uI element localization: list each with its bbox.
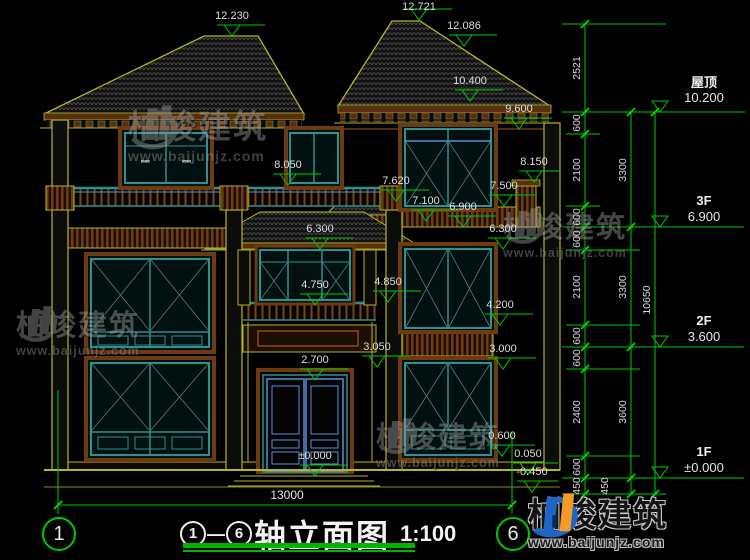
roof-left	[44, 36, 304, 114]
dimension-label: 2100	[571, 146, 583, 194]
elevation-marker-label: 2.700	[287, 354, 343, 367]
title-dash: —	[207, 524, 225, 545]
elevation-marker-label: 0.600	[474, 430, 530, 443]
elevation-marker-label: 12.721	[391, 1, 447, 14]
brand-logo: 柏竣建筑 www.baijunjz.com	[528, 488, 668, 550]
elevation-marker-label: 4.750	[287, 279, 343, 292]
window-2f-left	[86, 254, 214, 352]
elevation-marker-label: 12.230	[204, 10, 260, 23]
title-underline	[183, 543, 415, 548]
elevation-marker-label: 6.300	[475, 223, 531, 236]
window-2f-center	[256, 246, 354, 304]
elevation-marker-label: 8.050	[260, 159, 316, 172]
floor-level-elevation: 6.900	[664, 209, 744, 224]
entrance-steps	[228, 476, 380, 486]
elevation-marker-label: 4.200	[472, 299, 528, 312]
elevation-marker-label: 4.850	[360, 276, 416, 289]
dimension-label: 3600	[617, 388, 629, 436]
window-3f-center	[286, 128, 342, 188]
floor-level-name: 2F	[664, 313, 744, 328]
elevation-marker-label: 7.500	[476, 180, 532, 193]
elevation-marker-label: 3.000	[475, 343, 531, 356]
cornice-left	[40, 113, 306, 128]
elevation-marker-label: 8.150	[506, 156, 562, 169]
dimension-label: 2400	[571, 388, 583, 436]
dimension-label: 10650	[641, 276, 653, 324]
elevation-marker-label: 6.900	[435, 201, 491, 214]
elevation-marker-label: 10.400	[442, 75, 498, 88]
elevation-marker-label: 7.620	[368, 175, 424, 188]
dimension-label: 3300	[617, 263, 629, 311]
window-1f-left	[86, 358, 214, 460]
cad-elevation-screenshot: 柏竣建筑 www.baijunjz.com 柏竣建筑 www.baijunjz.…	[0, 0, 750, 560]
axis-bubble-6: 6	[496, 517, 530, 551]
dimension-label: 600	[571, 99, 583, 147]
brand-logo-icon	[528, 488, 582, 542]
window-1f-right	[400, 358, 496, 460]
dimension-label: 600	[571, 215, 583, 263]
overall-width-dimension: 13000	[252, 488, 322, 502]
elevation-marker-label: 3.050	[349, 341, 405, 354]
floor-level-name: 1F	[664, 444, 744, 459]
elevation-marker-label: -0.450	[504, 466, 560, 479]
elevation-marker-label: 12.086	[436, 20, 492, 33]
dimension-label: 600	[571, 334, 583, 382]
elevation-marker-label: 6.300	[292, 223, 348, 236]
balcony-railing-2f	[243, 303, 376, 320]
floor-level-elevation: 10.200	[664, 90, 744, 105]
window-3f-left	[120, 128, 212, 188]
title-underline-thin	[183, 550, 415, 552]
dimension-label: 2521	[571, 44, 583, 92]
axis-bubble-1: 1	[42, 517, 76, 551]
floor-level-name: 屋顶	[664, 72, 744, 91]
floor-level-elevation: 3.600	[664, 329, 744, 344]
floor-level-elevation: ±0.000	[664, 460, 744, 475]
floor-level-name: 3F	[664, 193, 744, 208]
dimension-label: 3300	[617, 146, 629, 194]
roof-main	[338, 21, 550, 106]
dimension-label: 2100	[571, 263, 583, 311]
elevation-marker-label: ±0.000	[287, 450, 343, 463]
elevation-marker-label: 9.600	[491, 103, 547, 116]
elevation-marker-label: 0.050	[500, 448, 556, 461]
